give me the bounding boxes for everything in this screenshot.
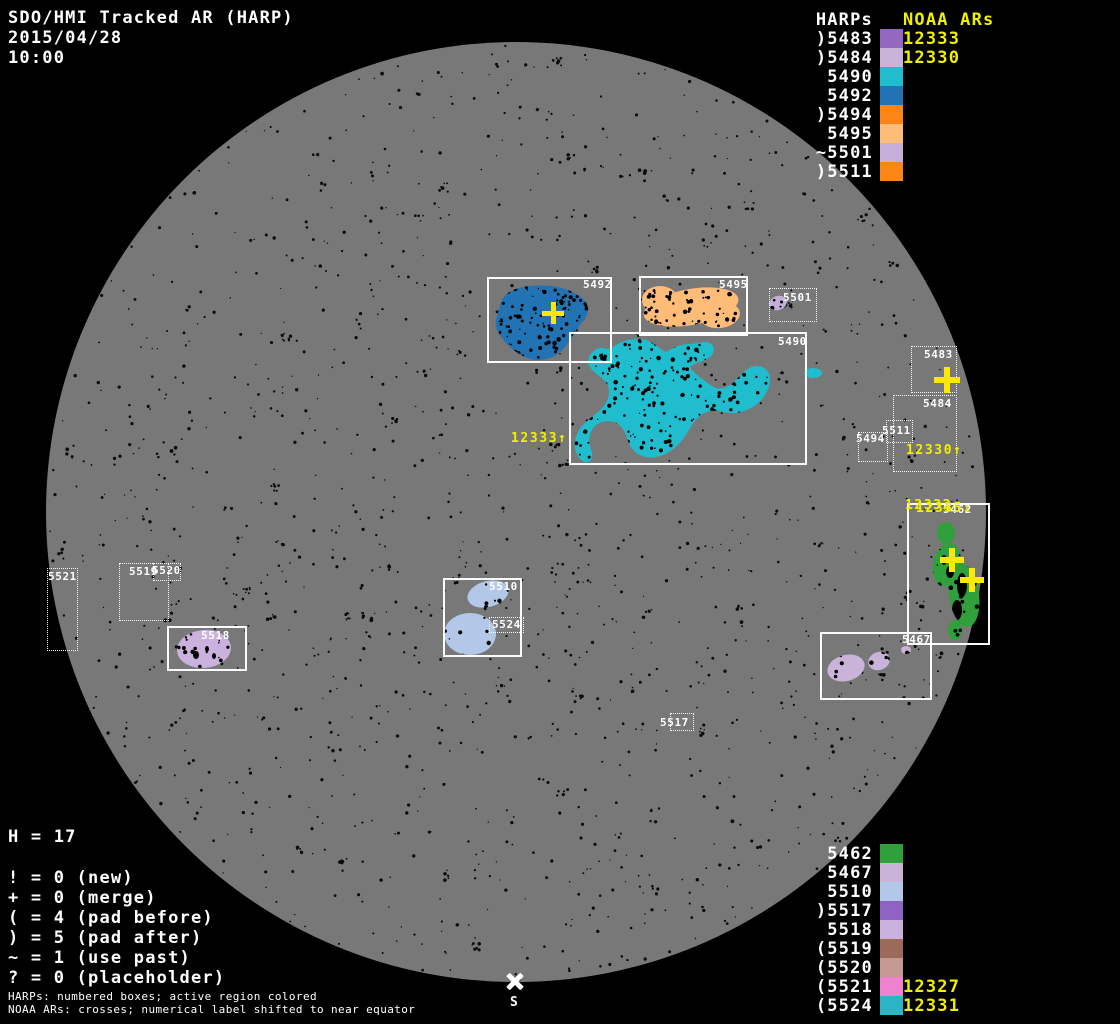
stats-line: ) = 5 (pad after) [8,928,225,948]
app-title: SDO/HMI Tracked AR (HARP) [8,8,294,28]
south-pole-marker-x [505,971,525,991]
harp-box-label-5495: 5495 [719,278,748,291]
harp-number: (5519 [816,939,873,959]
harp-number: )5511 [816,162,873,182]
harp-count: H = 17 [8,828,77,847]
harp-color-swatch [880,48,903,67]
stats-line: ? = 0 (placeholder) [8,968,225,988]
harp-number: 5495 [827,124,873,144]
harp-box-label-5517: 5517 [660,716,689,729]
harp-number: 5467 [827,863,873,883]
harp-color-swatch [880,882,903,901]
harp-number: (5521 [816,977,873,997]
harp-number: 5518 [827,920,873,940]
harp-color-swatch [880,996,903,1015]
harp-number: 5462 [827,844,873,864]
harp-box-label-5524: 5524 [492,618,521,631]
harp-color-swatch [880,844,903,863]
harp-box-label-5501: 5501 [783,291,812,304]
harp-color-swatch [880,863,903,882]
noaa-ar-label: 12333↑ [511,431,568,446]
noaa-ar-cross [934,367,960,393]
harp-number: (5524 [816,996,873,1016]
harp-color-swatch [880,162,903,181]
noaa-ar-number: 12327 [903,977,960,997]
footnote-noaa: NOAA ARs: crosses; numerical label shift… [8,1003,415,1016]
harp-number: 5510 [827,882,873,902]
harps-header: HARPs [816,10,873,30]
harp-box-label-5510: 5510 [489,580,518,593]
harp-color-swatch [880,901,903,920]
harp-number: 5490 [827,67,873,87]
noaa-ar-label: 12330↑ [906,443,963,458]
harp-color-swatch [880,86,903,105]
noaa-ar-number: 12330 [903,48,960,68]
harp-box-label-5492: 5492 [583,278,612,291]
harp-number: )5494 [816,105,873,125]
noaa-ar-cross [542,302,564,324]
noaa-ar-cross [960,568,984,592]
harp-color-swatch [880,939,903,958]
harp-box-label-5521: 5521 [48,570,77,583]
south-pole-label: S [510,995,518,1010]
harp-color-swatch [880,958,903,977]
stats-line: ! = 0 (new) [8,868,225,888]
harp-box-label-5484: 5484 [923,397,952,410]
harp-box-label-5518: 5518 [201,629,230,642]
harp-number: )5484 [816,48,873,68]
harp-number: (5520 [816,958,873,978]
harp-color-swatch [880,977,903,996]
harp-color-swatch [880,920,903,939]
harp-box-label-5467: 5467 [902,633,931,646]
harp-box-label-5511: 5511 [882,424,911,437]
harp-box-label-5520: 5520 [152,564,181,577]
harp-color-swatch [880,143,903,162]
noaa-ars-header: NOAA ARs [903,10,994,30]
harp-color-swatch [880,67,903,86]
date-label: 2015/04/28 [8,28,294,48]
harp-box-label-5483: 5483 [924,348,953,361]
harp-tracker-screen: 5492549554905462546755185510550154835484… [0,0,1120,1024]
time-label: 10:00 [8,48,294,68]
header: SDO/HMI Tracked AR (HARP) 2015/04/28 10:… [8,8,294,68]
footnotes: HARPs: numbered boxes; active region col… [8,990,415,1016]
harp-color-swatch [880,105,903,124]
noaa-ar-number: 12331 [903,996,960,1016]
harp-color-swatch [880,124,903,143]
harp-number: )5517 [816,901,873,921]
harp-box-label-5490: 5490 [778,335,807,348]
stats-line: ( = 4 (pad before) [8,908,225,928]
stats-line: ~ = 1 (use past) [8,948,225,968]
noaa-ar-label: 12335↓ [916,501,973,516]
stats-line: + = 0 (merge) [8,888,225,908]
harp-box-5490 [569,332,807,465]
harp-number: )5483 [816,29,873,49]
noaa-ar-number: 12333 [903,29,960,49]
stats-legend: ! = 0 (new)+ = 0 (merge)( = 4 (pad befor… [8,868,225,988]
harp-number: ~5501 [816,143,873,163]
harp-number: 5492 [827,86,873,106]
footnote-harps: HARPs: numbered boxes; active region col… [8,990,415,1003]
harp-box-label-5494: 5494 [856,432,885,445]
harp-color-swatch [880,29,903,48]
